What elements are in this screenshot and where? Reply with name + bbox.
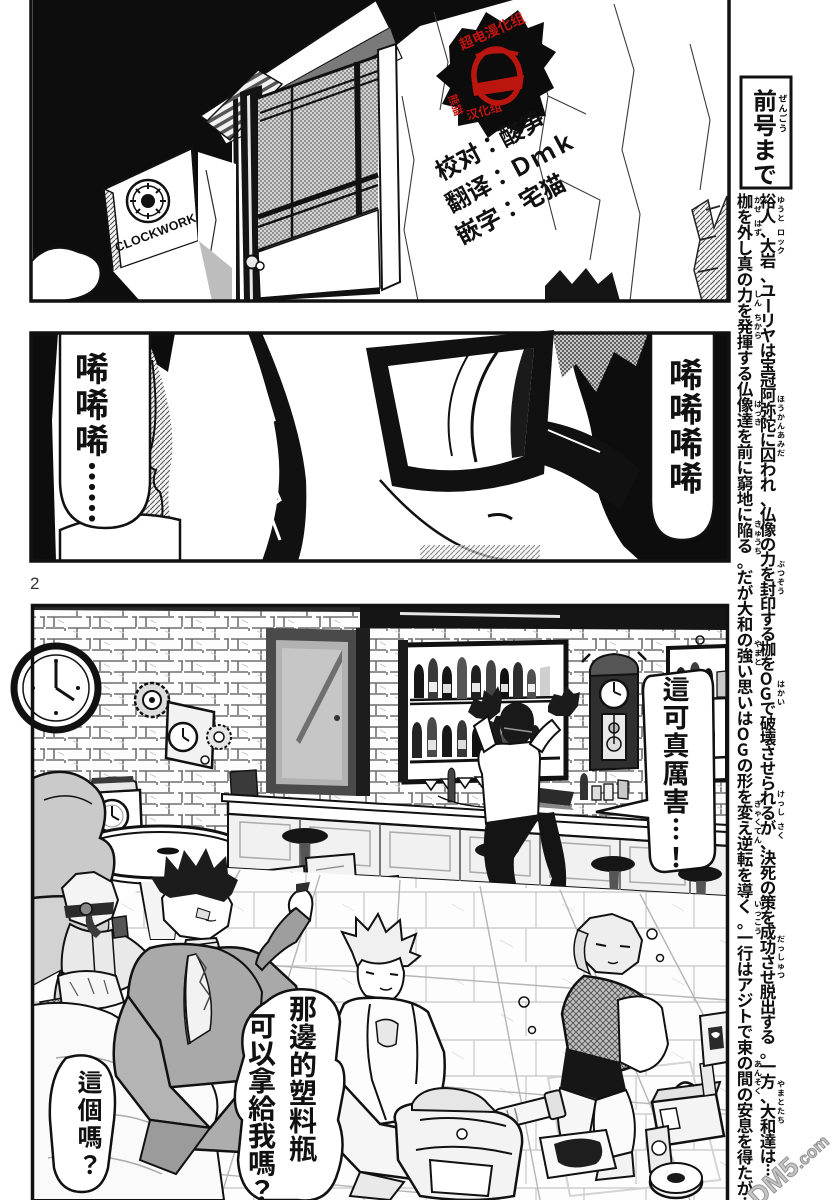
- svg-text:DM5.com: DM5.com: [742, 1125, 834, 1200]
- svg-text:2: 2: [30, 574, 39, 593]
